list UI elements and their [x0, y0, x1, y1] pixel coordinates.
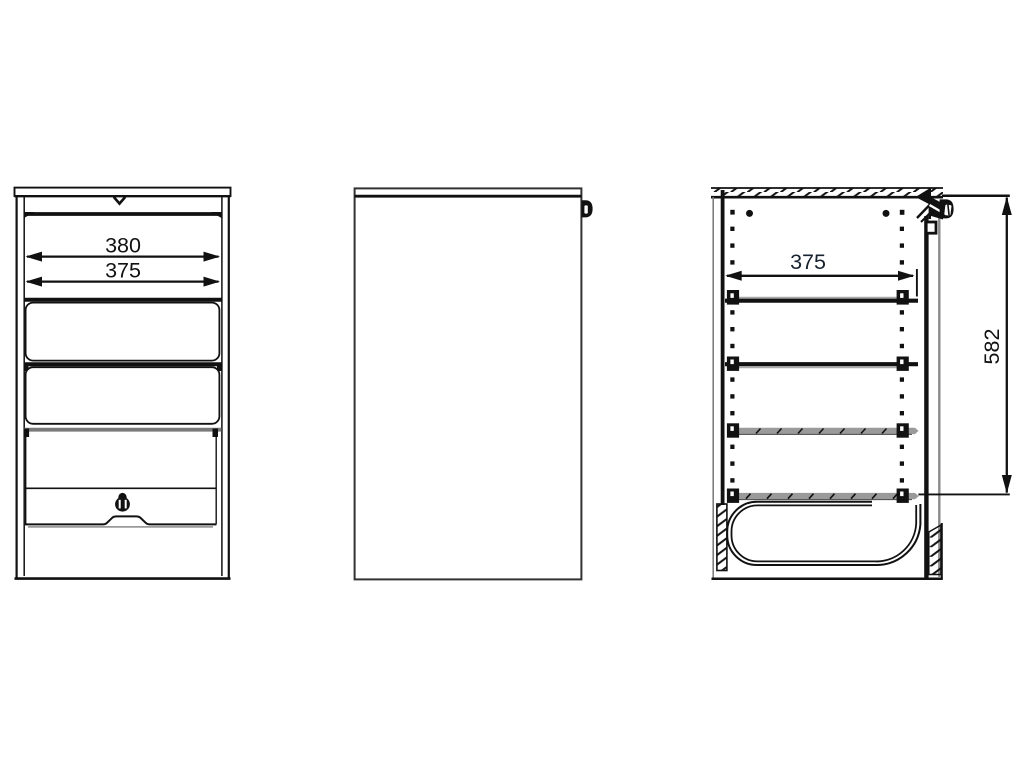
- svg-text:380: 380: [105, 234, 141, 258]
- svg-text:375: 375: [105, 259, 141, 283]
- svg-text:375: 375: [790, 250, 826, 274]
- svg-text:582: 582: [980, 329, 1004, 365]
